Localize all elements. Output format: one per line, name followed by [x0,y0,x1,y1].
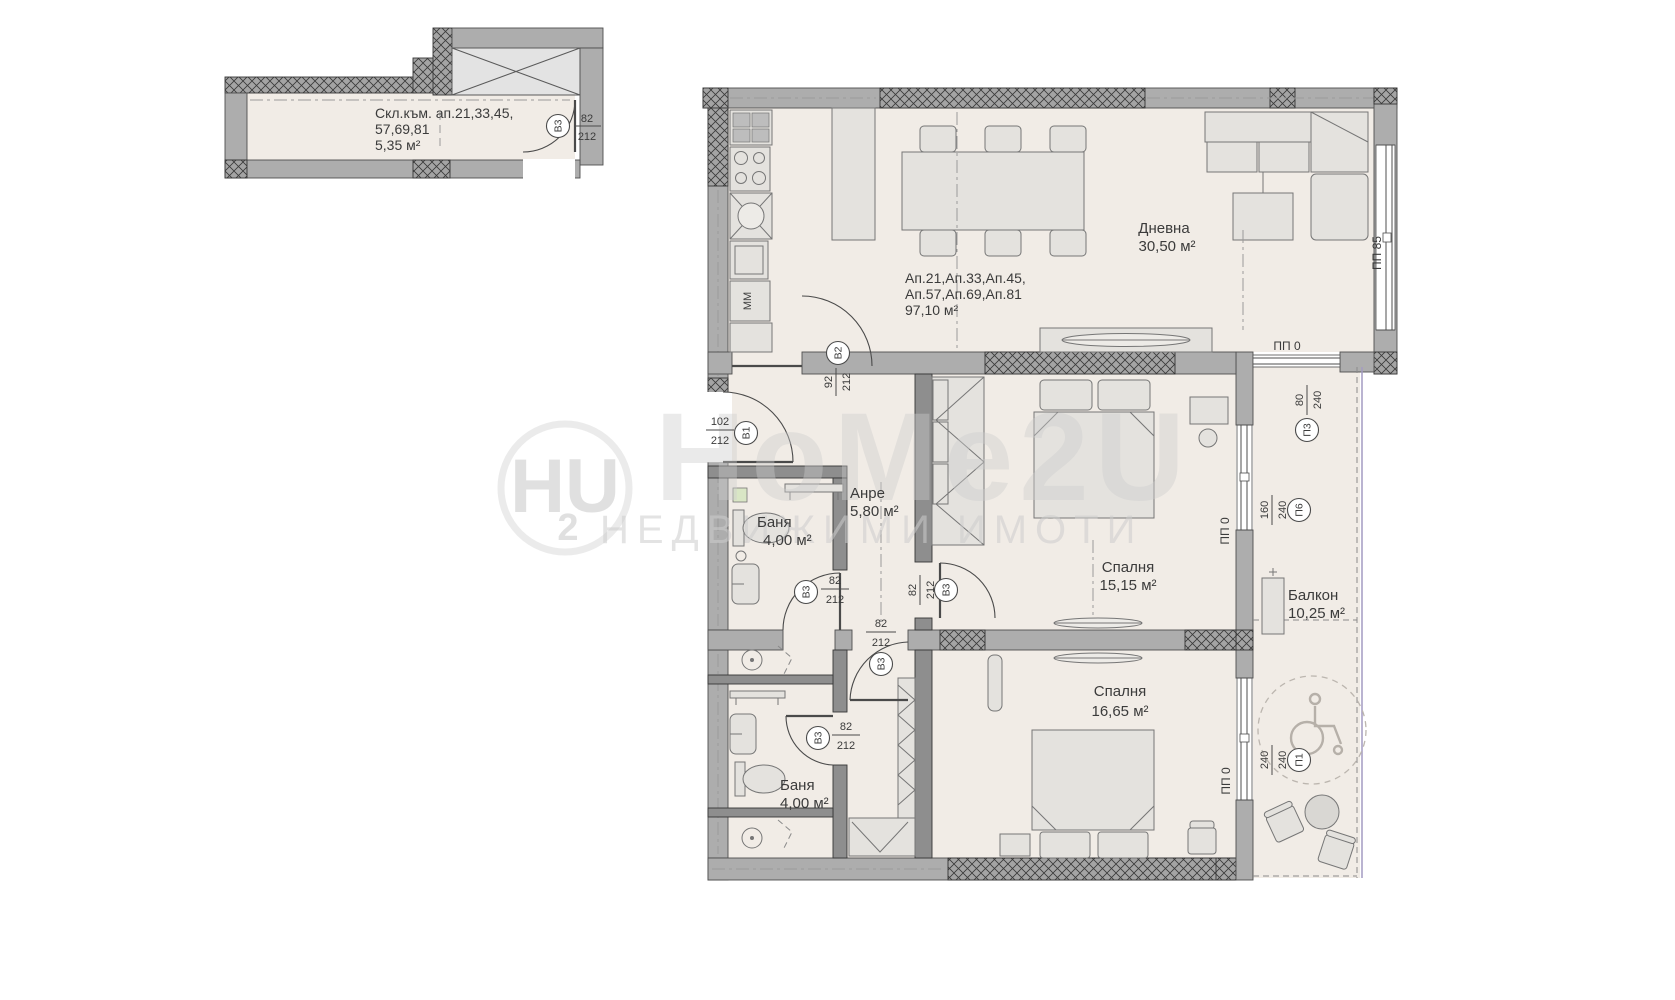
room-balcony-name: Балкон [1288,587,1338,604]
door-id: В3 [801,585,813,598]
tv-unit [1040,328,1212,352]
room-balcony-area: 10,25 м² [1288,605,1345,622]
room-hall-area: 5,80 м² [850,503,899,520]
washing-machine-icon: ММ [730,281,770,321]
stool [1188,821,1216,854]
kitchen-island [832,108,875,240]
door-id: В3 [876,657,888,670]
window-label: ПП 85 [1370,236,1384,270]
watermark-logo-digit: 2 [557,507,578,549]
window-bedroom1 [1237,425,1252,530]
room-bedroom1-area: 15,15 м² [1099,577,1156,594]
window-id: П6 [1294,503,1306,517]
door-width: 92 [823,376,835,388]
window-width: 80 [1294,394,1306,406]
window-width: 160 [1259,501,1271,519]
door-id: В3 [553,119,565,132]
window-label-pp0-top: ПП 0 [1273,339,1301,353]
door-height: 212 [578,131,596,143]
storage-room: Скл.към. ап.21,33,45, 57,69,81 5,35 м² В… [225,28,603,179]
window-id: П3 [1302,423,1314,437]
room-bedroom2-name: Спалня [1094,683,1146,700]
storage-label-line1: Скл.към. ап.21,33,45, [375,105,513,121]
watermark-brand: HoMe2U [655,388,1191,527]
door-width: 82 [829,575,841,587]
stove-icon [730,147,770,191]
door-width: 102 [711,416,729,428]
room-bedroom2-area: 16,65 м² [1091,703,1148,720]
sink-icon [730,193,772,239]
apartment-ids-line2: Ап.57,Ап.69,Ап.81 [905,286,1022,302]
room-hall-name: Анре [850,485,885,502]
door-height: 212 [826,594,844,606]
door-id: В3 [813,731,825,744]
elevator-shaft-icon [452,48,580,95]
window-height: 240 [1312,391,1324,409]
floor-plan-page: Скл.към. ап.21,33,45, 57,69,81 5,35 м² В… [0,0,1675,1000]
room-living-name: Дневна [1138,220,1190,237]
dining-table [902,152,1084,230]
door-width: 82 [581,113,593,125]
window-width: 240 [1259,751,1271,769]
door-id: В3 [941,583,953,596]
door-id: В2 [833,346,845,359]
room-bath1-area: 4,00 м² [763,532,812,549]
window-id: П1 [1294,753,1306,767]
room-living-area: 30,50 м² [1138,238,1195,255]
radiator [988,655,1002,711]
window-bedroom2 [1237,678,1252,800]
window-label-pp0-bedroom2: ПП 0 [1219,767,1233,795]
door-height: 212 [711,435,729,447]
window-label-pp0-bedroom1: ПП 0 [1218,517,1232,545]
storage-area-label: 5,35 м² [375,137,421,153]
kitchen-counter [730,323,772,352]
watermark: HU 2 HoMe2U НЕДВИЖИМИ ИМОТИ [501,388,1191,552]
door-height: 212 [872,637,890,649]
apartment-area: 97,10 м² [905,302,959,318]
room-bath2-name: Баня [780,777,815,794]
radiator [1262,568,1284,634]
sink-icon [730,714,756,754]
dishwasher-icon [730,241,768,279]
door-width: 82 [907,584,919,596]
door-width: 82 [875,618,887,630]
door-width: 82 [840,721,852,733]
door-id: В1 [741,426,753,439]
sink-icon [732,564,759,604]
door-height: 212 [841,373,853,391]
kitchen-upper-cabinet [730,110,772,145]
washing-machine-label: ММ [742,292,754,310]
storage-label-line2: 57,69,81 [375,121,430,137]
dining-set [902,126,1086,256]
room-bedroom1-name: Спалня [1102,559,1154,576]
floor-plan-drawing: Скл.към. ап.21,33,45, 57,69,81 5,35 м² В… [0,0,1675,1000]
apartment-ids-line1: Ап.21,Ап.33,Ап.45, [905,270,1026,286]
room-bath1-name: Баня [757,514,792,531]
room-bath2-area: 4,00 м² [780,795,829,812]
door-height: 212 [837,740,855,752]
window-balcony-top [1253,355,1340,367]
